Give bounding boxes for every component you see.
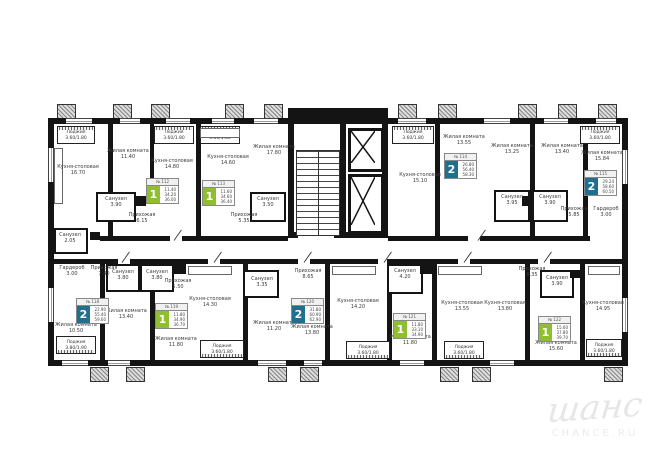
room-area: 16.70 [52,170,104,176]
room-area: 11.80 [388,340,432,346]
wall [182,236,288,241]
area-value: 60.50 [598,189,614,194]
room-area: 14.30 [180,302,240,308]
apartment-badge: № 119111.8034.9036.70 [155,303,188,329]
room-area: 3.95 [496,200,528,206]
window [596,118,616,124]
vent-shaft [90,232,100,240]
room-label: Жилая комната15.84 [580,150,624,162]
watermark-logo: шанс [532,384,657,432]
wall [220,259,298,264]
loggia: Лоджия3.60/1.80 [444,341,484,359]
loggia: Лоджия3.60/1.80 [392,126,434,144]
apartment-type: 1 [203,188,216,205]
room-area: 11.80 [150,342,202,348]
room-label: Санузел3.35 [246,276,278,288]
elevator-shaft [348,128,384,172]
room-label: Санузел3.50 [252,196,284,208]
pilaster [398,104,417,119]
door [122,252,130,263]
apartment-number: № 121 [394,314,425,321]
wall [550,259,622,264]
loggia-dims: 3.60/1.80 [581,136,619,142]
wall [310,259,378,264]
room-area: 15.10 [392,178,448,184]
room-area: 11.40 [104,154,152,160]
room-area: 13.80 [480,306,530,312]
room-label: Гардероб3.00 [588,206,624,218]
room-label: Жилая комната13.40 [102,308,150,320]
apartment-badge: № 118222.9055.4059.60 [76,298,109,324]
room-area: 2.05 [54,238,86,244]
apartment-badge: № 115229.2458.6060.50 [584,170,617,196]
area-value: 36.40 [216,199,232,204]
vent-shaft [174,264,186,274]
room-area: 14.60 [200,160,256,166]
pilaster [113,104,132,119]
area-value: 59.60 [90,317,106,322]
room-label: Кухня-столовая15.10 [392,172,448,184]
room-label: Кухня-столовая14.80 [146,158,198,170]
window [62,360,88,366]
room-label: Кухня-столовая14.95 [582,300,624,312]
wall [288,118,294,238]
room-area: 10.50 [54,328,98,334]
kitchen-counter [54,148,63,204]
loggia: Лоджия3.80/1.90 [56,336,96,354]
window [544,118,568,124]
window [484,118,510,124]
room-area: 15.84 [580,156,624,162]
room-area: 17.80 [246,150,302,156]
loggia: Лоджия3.60/1.80 [346,341,390,359]
apartment-number: № 114 [445,154,476,161]
pilaster [438,104,457,119]
room-label: Прихожая6.15 [120,212,164,224]
room-area: 14.80 [146,164,198,170]
area-value: 62.90 [305,317,321,322]
room-area: 13.40 [102,314,150,320]
room-label: Жилая комната11.80 [150,336,202,348]
room-area: 14.95 [582,306,624,312]
room-area: 3.50 [252,202,284,208]
wall [480,236,590,241]
window [400,360,424,366]
apartment-type: 2 [77,306,90,323]
pilaster [264,104,283,119]
room-area: 4.20 [388,274,422,280]
apartment-number: № 122 [539,317,570,324]
area-value: 58.30 [458,172,474,177]
loggia-dims: 3.60/1.80 [58,136,94,142]
pilaster [225,104,244,119]
room-label: Жилая комната11.40 [104,148,152,160]
room-area: 3.00 [588,212,624,218]
room-label: Санузел3.90 [534,194,566,206]
room-label: Жилая комната13.25 [484,143,540,155]
apartment-badge: № 112111.4034.2036.00 [146,178,179,204]
room-label: Санузел3.80 [107,269,139,281]
pilaster [57,104,76,119]
room-area: 6.15 [120,218,164,224]
pilaster [300,367,319,382]
wall [340,118,346,238]
room-label: Жилая комната17.80 [246,144,302,156]
apartment-number: № 120 [292,299,323,306]
room-area: 5.35 [222,218,266,224]
watermark-caption: CHANCE.RU [540,428,650,439]
apartment-number: № 118 [77,299,108,306]
loggia-dims: 3.60/1.80 [393,136,433,142]
pilaster [126,367,145,382]
apartment-type: 1 [394,321,407,338]
room-area: 5.50 [158,284,198,290]
pilaster [440,367,459,382]
window [254,118,278,124]
room-area: 15.60 [530,346,582,352]
apartment-type: 1 [156,311,169,328]
room-label: Кухня-столовая16.70 [52,164,104,176]
kitchen-counter [332,266,376,275]
loggia: Лоджия3.60/1.80 [200,340,244,358]
room-label: Кухня-столовая13.80 [480,300,530,312]
window [212,118,234,124]
wall [288,108,388,120]
apartment-badge: № 113111.6034.6036.40 [202,180,235,206]
area-value: 36.00 [160,197,176,202]
room-area: 3.35 [246,282,278,288]
kitchen-counter [588,266,620,275]
apartment-badge: № 120231.8060.9062.90 [291,298,324,324]
room-label: Прихожая5.50 [158,278,198,290]
wall [48,360,628,366]
apartment-number: № 113 [203,181,234,188]
apartment-badge: № 114226.8056.4058.30 [444,153,477,179]
loggia: Лоджия3.60/1.80 [580,126,620,144]
room-area: 13.25 [484,149,540,155]
loggia-dims: 3.60/1.80 [155,136,193,142]
room-label: Санузел3.95 [496,194,528,206]
vent-shaft [134,196,146,206]
pilaster [558,104,577,119]
apartment-number: № 112 [147,179,178,186]
wall [100,236,170,241]
room-label: Прихожая8.65 [286,268,330,280]
loggia: Лоджия3.60/1.80 [154,126,194,144]
apartment-number: № 115 [585,171,616,178]
kitchen-counter [200,128,240,138]
floorplan-canvas: шанс CHANCE.RU [0,0,670,474]
apartment-type: 2 [585,178,598,195]
apartment-badge: № 122115.6037.8039.70 [538,316,571,342]
pilaster [598,104,617,119]
pilaster [151,104,170,119]
pilaster [472,367,491,382]
room-area: 13.80 [288,330,336,336]
window [48,288,54,322]
area-value: 36.70 [169,322,185,327]
window [66,118,92,124]
elevator-shaft [348,174,384,234]
room-area: 8.65 [286,274,330,280]
apartment-type: 1 [539,324,552,341]
window [166,118,190,124]
room-area: 3.90 [541,281,573,287]
loggia: Лоджия3.60/1.80 [586,339,622,357]
room-label: Санузел4.20 [388,268,422,280]
room-label: Санузел3.90 [98,196,134,208]
window [258,360,286,366]
apartment-number: № 119 [156,304,187,311]
staircase [296,150,340,236]
room-label: Жилая комната13.80 [288,324,336,336]
window [108,360,130,366]
apartment-badge: № 121111.8033.1034.90 [393,313,426,339]
room-label: Санузел2.05 [54,232,86,244]
window [398,118,426,124]
pilaster [90,367,109,382]
area-value: 39.70 [552,335,568,340]
pilaster [604,367,623,382]
kitchen-counter [188,266,232,275]
room-label: Прихожая5.35 [222,212,266,224]
loggia: Лоджия3.60/1.80 [57,126,95,144]
pilaster [268,367,287,382]
apartment-type: 2 [292,306,305,323]
room-area: 3.80 [107,275,139,281]
pilaster [518,104,537,119]
window [304,360,322,366]
apartment-type: 1 [147,186,160,203]
window [120,118,140,124]
room-area: 14.20 [330,304,386,310]
window [490,360,514,366]
door [174,230,182,241]
wall [388,236,468,241]
room-label: Санузел3.90 [541,275,573,287]
room-area: 3.90 [98,202,134,208]
room-label: Кухня-столовая14.30 [180,296,240,308]
area-value: 34.90 [407,332,423,337]
kitchen-counter [438,266,482,275]
room-label: Кухня-столовая14.20 [330,298,386,310]
apartment-type: 2 [445,161,458,178]
